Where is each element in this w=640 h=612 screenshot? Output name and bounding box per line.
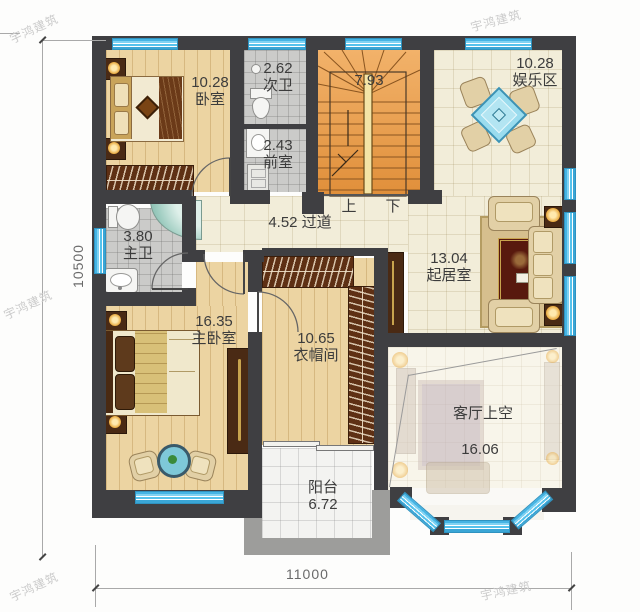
- room-area: 13.04: [413, 250, 485, 267]
- ghost-lamp: [546, 350, 559, 363]
- window: [564, 168, 576, 200]
- balcony-sliding-door: [316, 445, 374, 451]
- stairs-area-label: 7.93: [344, 72, 394, 89]
- wall: [374, 248, 388, 490]
- ghost-lamp: [392, 462, 408, 478]
- wall-left: [92, 36, 106, 518]
- room-label-void-area: 16.06: [448, 441, 512, 458]
- bedside-lamp: [108, 142, 120, 154]
- room-name: 衣帽间: [283, 347, 349, 364]
- window: [94, 228, 106, 274]
- wall: [182, 196, 196, 252]
- dimension-extension: [95, 545, 96, 607]
- dimension-label-bottom: 11000: [286, 566, 329, 582]
- room-area: 3.80: [110, 228, 166, 245]
- room-name: 起居室: [413, 267, 485, 284]
- ghost-lamp: [546, 452, 559, 465]
- room-area: 10.65: [283, 330, 349, 347]
- room-area: 10.28: [178, 74, 242, 91]
- balcony-parapet-right: [372, 490, 390, 555]
- balcony-sliding-door: [263, 441, 320, 447]
- floor-lamp: [546, 208, 560, 222]
- watermark: 宇鸿建筑: [1, 286, 55, 323]
- stairs-area: 7.93: [344, 72, 394, 89]
- window: [112, 38, 178, 50]
- room-area: 2.43: [250, 137, 306, 154]
- wall: [244, 124, 306, 129]
- wall: [248, 262, 262, 292]
- room-name: 卧室: [178, 91, 242, 108]
- main-sofa: [528, 226, 564, 304]
- bedside-lamp: [108, 62, 120, 74]
- room-area: 16.35: [178, 313, 250, 330]
- wall: [243, 250, 264, 262]
- ghost-window-seat: [544, 362, 560, 460]
- bedside-lamp: [109, 314, 121, 326]
- room-label-balcony: 阳台 6.72: [294, 479, 352, 513]
- room-label-void-name: 客厅上空: [442, 405, 524, 422]
- room-label-living: 13.04 起居室: [413, 250, 485, 284]
- bed-ornament: [135, 95, 159, 119]
- window: [248, 38, 306, 50]
- wall-right: [562, 36, 576, 508]
- dimension-extension: [42, 40, 106, 41]
- dimension-tick: [39, 553, 46, 560]
- wall-stub: [408, 190, 442, 204]
- room-name: 前室: [250, 154, 306, 171]
- watermark: 宇鸿建筑: [7, 10, 61, 47]
- stairs-bottom-line: [318, 194, 420, 196]
- bathroom-sink: [104, 268, 138, 293]
- room-area: 10.28: [500, 55, 570, 72]
- room-name: 次卫: [250, 77, 306, 94]
- room-name: 阳台: [294, 479, 352, 496]
- watermark: 宇鸿建筑: [7, 568, 61, 605]
- wall: [262, 248, 388, 256]
- stairs-up-label: 上: [340, 198, 358, 215]
- room-label-secondary-bath: 2.62 次卫: [250, 60, 306, 94]
- room-name: 主卫: [110, 245, 166, 262]
- room-area: 6.72: [294, 496, 352, 513]
- window: [345, 38, 402, 50]
- ghost-sofa-bottom: [426, 462, 490, 494]
- window: [564, 276, 576, 336]
- room-name: 娱乐区: [500, 72, 570, 89]
- wardrobe-cloakroom-top: [262, 256, 354, 288]
- stairs-down-label: 下: [384, 198, 402, 215]
- window: [564, 212, 576, 264]
- wall: [420, 50, 434, 192]
- floor-lamp: [546, 306, 560, 320]
- wall-beam-void: [374, 333, 576, 347]
- dimension-extension: [571, 552, 572, 610]
- ghost-lamp: [392, 352, 408, 368]
- bed-secondary: [110, 76, 184, 142]
- wall: [92, 190, 192, 204]
- window: [465, 38, 532, 50]
- room-label-entertainment: 10.28 娱乐区: [500, 55, 570, 89]
- toilet-bowl: [116, 204, 140, 230]
- wall-stub: [302, 192, 324, 214]
- watermark: 宇鸿建筑: [469, 6, 524, 36]
- dimension-label-left: 10500: [70, 244, 86, 288]
- room-name: 主卧室: [178, 330, 250, 347]
- floor-plan: 10.28 卧室 2.62 次卫 2.43 前室 7.93 10.28 娱乐区 …: [0, 0, 640, 612]
- balcony-parapet-bottom: [244, 538, 390, 555]
- window: [135, 491, 224, 504]
- watermark: 宇鸿建筑: [479, 577, 533, 604]
- wall: [92, 292, 196, 306]
- room-label-cloakroom: 10.65 衣帽间: [283, 330, 349, 364]
- tea-table: [157, 444, 191, 478]
- room-label-master-bath: 3.80 主卫: [110, 228, 166, 262]
- wall: [306, 50, 318, 192]
- room-label-hallway: 4.52 过道: [252, 214, 348, 231]
- single-sofa: [488, 299, 540, 333]
- room-label-master-bedroom: 16.35 主卧室: [178, 313, 250, 347]
- room-label-anteroom: 2.43 前室: [250, 137, 306, 171]
- bedside-lamp: [109, 416, 121, 428]
- room-label-bedroom: 10.28 卧室: [178, 74, 242, 108]
- bay-window-center: [444, 520, 510, 533]
- door-bedroom: [190, 156, 234, 200]
- room-area: 2.62: [250, 60, 306, 77]
- wall: [230, 190, 270, 204]
- door-master-bedroom: [202, 250, 246, 296]
